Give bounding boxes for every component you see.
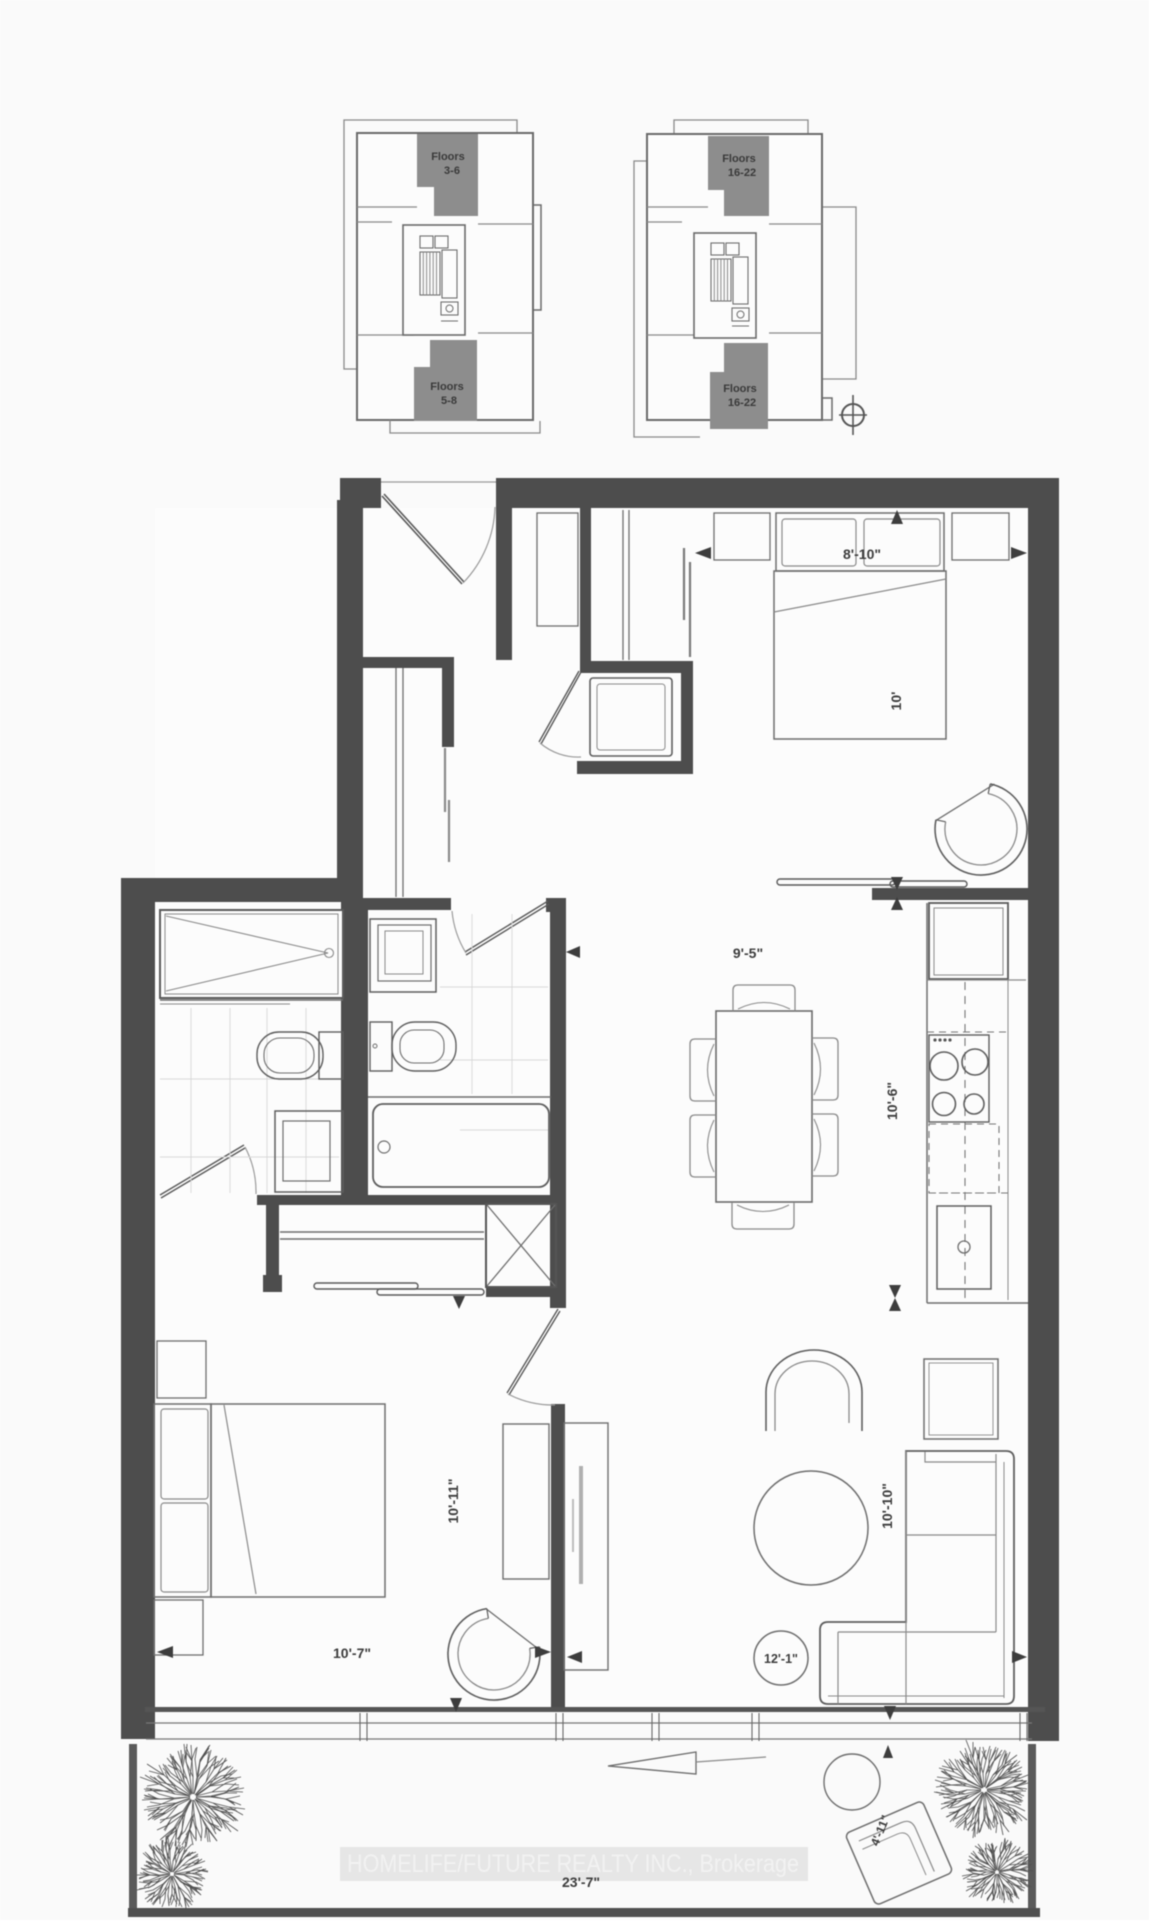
svg-text:Floors: Floors (430, 381, 464, 393)
svg-text:12'-1": 12'-1" (764, 1652, 798, 1666)
svg-text:Floors: Floors (723, 383, 757, 395)
svg-text:9'-5": 9'-5" (733, 945, 763, 961)
svg-text:16-22: 16-22 (728, 167, 756, 179)
svg-text:23'-7": 23'-7" (562, 1874, 600, 1890)
svg-text:8'-10": 8'-10" (843, 546, 881, 562)
svg-text:3-6: 3-6 (444, 165, 460, 177)
svg-text:10'-10": 10'-10" (879, 1483, 895, 1529)
svg-text:10'-6": 10'-6" (884, 1082, 900, 1120)
svg-text:5-8: 5-8 (441, 395, 457, 407)
svg-text:10': 10' (888, 692, 904, 711)
svg-text:10'-11": 10'-11" (445, 1478, 461, 1523)
svg-text:16-22: 16-22 (728, 397, 756, 409)
svg-text:10'-7": 10'-7" (333, 1645, 371, 1661)
svg-text:Floors: Floors (722, 153, 756, 165)
svg-text:Floors: Floors (431, 151, 465, 163)
